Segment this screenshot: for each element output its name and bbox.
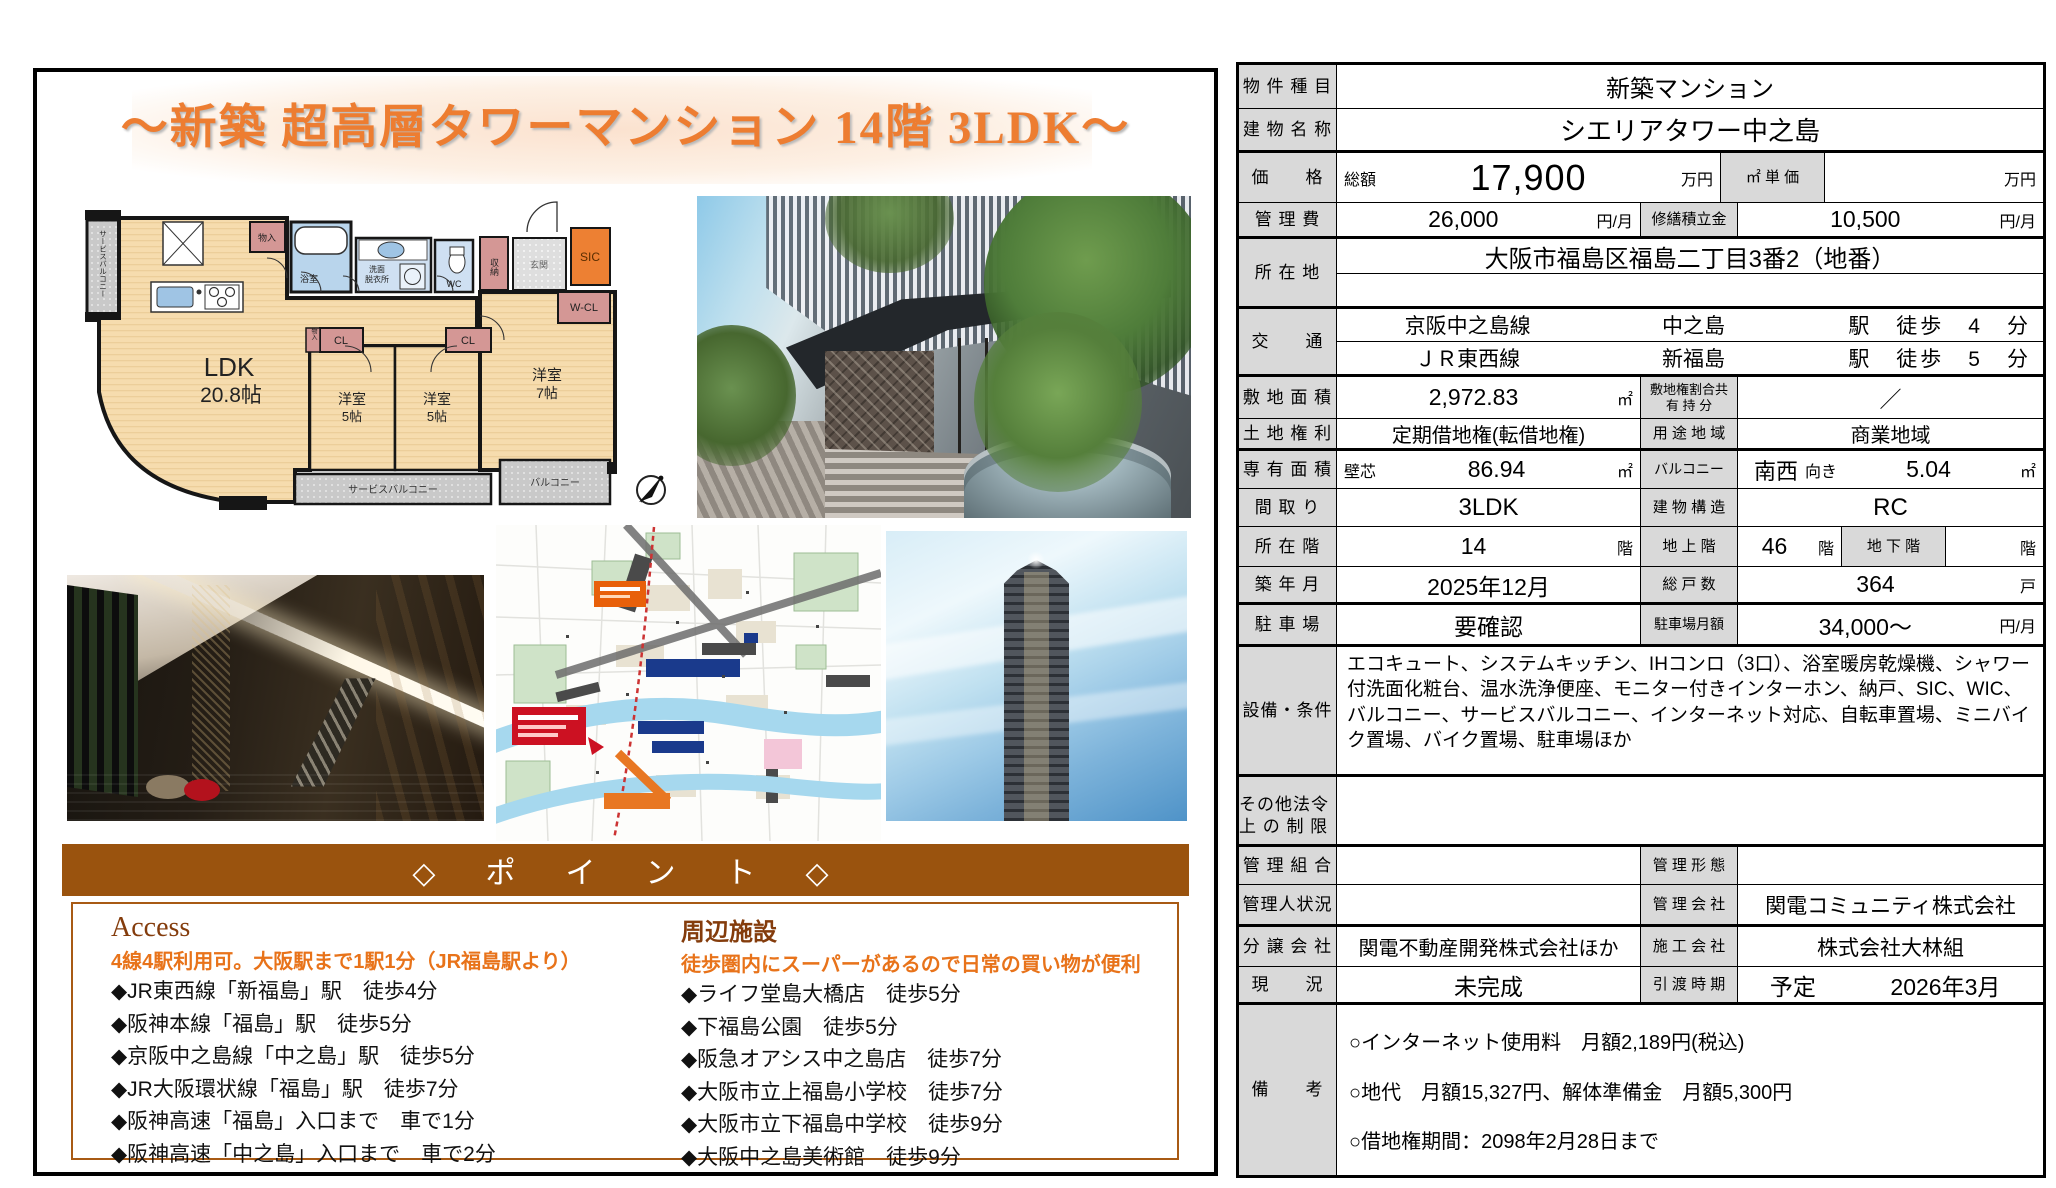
label-builder: 施 工 会 社: [1640, 927, 1738, 966]
transport-line-name: 京阪中之島線: [1337, 310, 1598, 340]
label-layout: 間 取 り: [1239, 489, 1337, 526]
delivery-value: 2026年3月: [1848, 968, 2043, 1002]
remarks-line: ○借地権期間：2098年2月28日まで: [1349, 1125, 1659, 1154]
value-location: 大阪市福島区福島二丁目3番2（地番）: [1337, 239, 2043, 274]
bedroom1-size: 5帖: [342, 409, 362, 424]
label-repair-fund: 修繕積立金: [1640, 203, 1738, 236]
value-structure: RC: [1738, 489, 2043, 526]
delivery-prefix: 予定: [1738, 968, 1848, 1002]
value-zoning: 商業地域: [1738, 419, 2043, 448]
row-price: 価 格 総額 17,900 万円 ㎡ 単 価 万円: [1239, 153, 2043, 203]
row-management-association: 管 理 組 合 管 理 形 態: [1239, 847, 2043, 885]
transport-line-1: 京阪中之島線 中之島 駅 徒歩 4 分: [1337, 309, 2043, 342]
row-manager-status: 管理人状況 管 理 会 社 関電コミュニティ株式会社: [1239, 885, 2043, 927]
washroom-label-2: 脱衣所: [365, 274, 389, 284]
value-seller: 関電不動産開発株式会社ほか: [1337, 927, 1640, 966]
label-location: 所 在 地: [1239, 239, 1337, 306]
property-spec-table: 物 件 種 目 新築マンション 建 物 名 称 シエリアタワー中之島 価 格 総…: [1236, 62, 2046, 1178]
value-remarks: ○インターネット使用料 月額2,189円(税込) ○地代 月額15,327円、解…: [1337, 1005, 2043, 1175]
label-property-type: 物 件 種 目: [1239, 65, 1337, 108]
label-unit-price: ㎡ 単 価: [1720, 153, 1825, 202]
price-amount: 17,900: [1383, 157, 1674, 199]
row-location: 所 在 地 大阪市福島区福島二丁目3番2（地番）: [1239, 239, 2043, 309]
balcony-amount: 5.04: [1844, 456, 2013, 483]
facility-item: ◆大阪中之島美術館 徒歩9分: [681, 1142, 1161, 1175]
access-column: Access 4線4駅利用可。大阪駅まで1駅1分（JR福島駅より） ◆JR東西線…: [111, 912, 651, 1171]
row-equipment: 設備・条件 エコキュート、システムキッチン、IHコンロ（3口）、浴室暖房乾燥機、…: [1239, 647, 2043, 777]
access-item: ◆阪神本線「福島」駅 徒歩5分: [111, 1009, 651, 1042]
sic-label: SIC: [580, 250, 600, 264]
label-management-fee: 管 理 費: [1239, 203, 1337, 236]
flyer-title: 〜新築 超高層タワーマンション 14階 3LDK〜: [37, 88, 1214, 157]
lobby-photo: [67, 575, 484, 821]
value-building-name: シエリアタワー中之島: [1337, 109, 2043, 150]
bedroom2-size: 5帖: [427, 409, 447, 424]
label-parking: 駐 車 場: [1239, 605, 1337, 644]
flyer-panel: 〜新築 超高層タワーマンション 14階 3LDK〜: [33, 68, 1218, 1176]
label-total-units: 総 戸 数: [1640, 567, 1738, 602]
row-site-area: 敷 地 面 積 2,972.83 ㎡ 敷地権割合共 有 持 分 ／: [1239, 377, 2043, 419]
transport-walk: 駅 徒歩 5 分: [1789, 343, 2043, 373]
label-zoning: 用 途 地 域: [1640, 419, 1738, 448]
transport-line-name: ＪＲ東西線: [1337, 343, 1598, 373]
management-fee-unit: 円/月: [1590, 208, 1640, 232]
label-land-share: 敷地権割合共 有 持 分: [1640, 377, 1738, 418]
transport-line-2: ＪＲ東西線 新福島 駅 徒歩 5 分: [1337, 342, 2043, 374]
row-floor: 所 在 階 14 階 地 上 階 46 階 地 下 階 階: [1239, 527, 2043, 567]
parking-monthly-unit: 円/月: [1993, 613, 2043, 637]
facilities-subheading: 徒歩圏内にスーパーがあるので日常の買い物が便利: [681, 948, 1161, 977]
facilities-column: 周辺施設 徒歩圏内にスーパーがあるので日常の買い物が便利 ◆ライフ堂島大橋店 徒…: [681, 912, 1161, 1174]
label-structure: 建 物 構 造: [1640, 489, 1738, 526]
price-prefix: 総額: [1337, 166, 1383, 190]
facilities-heading: 周辺施設: [681, 912, 1161, 947]
access-heading: Access: [111, 912, 651, 944]
row-management-fee: 管 理 費 26,000 円/月 修繕積立金 10,500 円/月: [1239, 203, 2043, 239]
wcl-label: W-CL: [570, 302, 598, 314]
row-exclusive-area: 専 有 面 積 壁芯 86.94 ㎡ バルコニー 南西 向き 5.04 ㎡: [1239, 451, 2043, 489]
facility-item: ◆大阪市立下福島中学校 徒歩9分: [681, 1109, 1161, 1142]
row-transport: 交 通 京阪中之島線 中之島 駅 徒歩 4 分 ＪＲ東西線 新福島 駅 徒歩 5…: [1239, 309, 2043, 377]
label-management-association: 管 理 組 合: [1239, 847, 1337, 884]
bedroom1-label: 洋室: [338, 391, 366, 407]
exclusive-area-unit: ㎡: [1610, 458, 1640, 482]
total-units-unit: 戸: [2013, 573, 2043, 597]
label-management-company: 管 理 会 社: [1640, 885, 1738, 924]
label-status: 現 況: [1239, 967, 1337, 1002]
balcony-muki: 向き: [1798, 458, 1844, 482]
row-remarks: 備 考 ○インターネット使用料 月額2,189円(税込) ○地代 月額15,32…: [1239, 1005, 2043, 1175]
entrance-label: 玄関: [530, 259, 548, 270]
label-site-area: 敷 地 面 積: [1239, 377, 1337, 418]
label-land-rights: 土 地 権 利: [1239, 419, 1337, 448]
unit-price-unit: 万円: [1997, 166, 2043, 190]
points-banner: ◇ ポ イ ン ト ◇: [62, 844, 1189, 896]
floorplan-image: LDK 20.8帖 洋室 5帖 洋室 5帖 洋室 7帖 CL CL W-CL S…: [59, 200, 624, 520]
closet2-label: CL: [461, 335, 475, 347]
bath-label: 浴室: [300, 273, 318, 284]
value-manager-status: [1337, 885, 1640, 924]
row-property-type: 物 件 種 目 新築マンション: [1239, 65, 2043, 109]
label-transport: 交 通: [1239, 309, 1337, 374]
floor-unit: 階: [1610, 535, 1640, 559]
label-exclusive-area: 専 有 面 積: [1239, 451, 1337, 488]
label-building-name: 建 物 名 称: [1239, 109, 1337, 150]
bedroom3-size: 7帖: [536, 385, 558, 401]
closet1-label: CL: [334, 335, 348, 347]
tower-photo: [886, 531, 1187, 821]
exclusive-area-prefix: 壁芯: [1337, 458, 1383, 482]
label-manager-status: 管理人状況: [1239, 885, 1337, 924]
access-subheading: 4線4駅利用可。大阪駅まで1駅1分（JR福島駅より）: [111, 945, 651, 974]
access-item: ◆京阪中之島線「中之島」駅 徒歩5分: [111, 1041, 651, 1074]
label-price: 価 格: [1239, 153, 1337, 202]
exclusive-area-amount: 86.94: [1383, 456, 1610, 483]
floors-below-unit: 階: [2013, 535, 2043, 559]
facility-item: ◆下福島公園 徒歩5分: [681, 1012, 1161, 1045]
value-management-association: [1337, 847, 1640, 884]
transport-station: 新福島: [1598, 343, 1789, 373]
label-built: 築 年 月: [1239, 567, 1337, 602]
row-parking: 駐 車 場 要確認 駐車場月額 34,000〜 円/月: [1239, 605, 2043, 647]
remarks-line: ○地代 月額15,327円、解体準備金 月額5,300円: [1349, 1076, 1792, 1105]
transport-station: 中之島: [1598, 310, 1789, 340]
label-floors-above: 地 上 階: [1640, 527, 1738, 566]
area-map: [496, 525, 881, 841]
label-management-form: 管 理 形 態: [1640, 847, 1738, 884]
repair-fund-amount: 10,500: [1738, 206, 1993, 233]
floor-value: 14: [1337, 533, 1610, 560]
parking-monthly-value: 34,000〜: [1738, 608, 1993, 642]
balcony-label: バルコニー: [530, 477, 580, 489]
storage-mid-label: 物入: [310, 327, 317, 340]
label-parking-monthly: 駐車場月額: [1640, 605, 1738, 644]
balcony-direction: 南西: [1754, 454, 1798, 486]
storage-label: 収納: [489, 257, 499, 277]
row-status: 現 況 未完成 引 渡 時 期 予定 2026年3月: [1239, 967, 2043, 1005]
access-item: ◆阪神高速「福島」入口まで 車で1分: [111, 1106, 651, 1139]
access-item: ◆JR大阪環状線「福島」駅 徒歩7分: [111, 1074, 651, 1107]
facility-item: ◆大阪市立上福島小学校 徒歩7分: [681, 1077, 1161, 1110]
value-status: 未完成: [1337, 967, 1640, 1002]
value-layout: 3LDK: [1337, 489, 1640, 526]
site-area-amount: 2,972.83: [1337, 384, 1610, 411]
label-balcony: バルコニー: [1640, 451, 1738, 488]
value-management-form: [1738, 847, 2043, 884]
facility-item: ◆ライフ堂島大橋店 徒歩5分: [681, 979, 1161, 1012]
site-area-unit: ㎡: [1610, 386, 1640, 410]
value-built: 2025年12月: [1337, 567, 1640, 602]
service-balcony-bottom-label: サービスバルコニー: [348, 484, 438, 496]
row-seller: 分 譲 会 社 関電不動産開発株式会社ほか 施 工 会 社 株式会社大林組: [1239, 927, 2043, 967]
management-fee-amount: 26,000: [1337, 206, 1590, 233]
bedroom-5a: [310, 346, 395, 470]
value-land-rights: 定期借地権(転借地権): [1337, 419, 1640, 448]
label-seller: 分 譲 会 社: [1239, 927, 1337, 966]
ldk-label: LDK: [204, 352, 255, 382]
remarks-line: ○インターネット使用料 月額2,189円(税込): [1349, 1026, 1744, 1055]
row-land-rights: 土 地 権 利 定期借地権(転借地権) 用 途 地 域 商業地域: [1239, 419, 2043, 451]
value-legal-restrictions: [1337, 777, 2043, 844]
label-floors-below: 地 下 階: [1841, 527, 1946, 566]
entrance-photo: [697, 196, 1191, 518]
access-item: ◆阪神高速「中之島」入口まで 車で2分: [111, 1139, 651, 1172]
transport-walk: 駅 徒歩 4 分: [1789, 310, 2043, 340]
floors-above-value: 46: [1738, 533, 1811, 560]
total-units-value: 364: [1738, 571, 2013, 598]
row-legal-restrictions: その他法令 上 の 制 限: [1239, 777, 2043, 847]
label-equipment: 設備・条件: [1239, 647, 1337, 774]
storage-top-label: 物入: [258, 232, 276, 243]
price-unit: 万円: [1674, 166, 1720, 190]
ldk-size: 20.8帖: [200, 384, 262, 407]
access-info-box: Access 4線4駅利用可。大阪駅まで1駅1分（JR福島駅より） ◆JR東西線…: [71, 902, 1179, 1160]
value-builder: 株式会社大林組: [1738, 927, 2043, 966]
access-item: ◆JR東西線「新福島」駅 徒歩4分: [111, 976, 651, 1009]
value-management-company: 関電コミュニティ株式会社: [1738, 885, 2043, 924]
bedroom-5b: [395, 346, 480, 470]
row-building-name: 建 物 名 称 シエリアタワー中之島: [1239, 109, 2043, 153]
value-land-share: ／: [1738, 377, 2043, 418]
facility-item: ◆阪急オアシス中之島店 徒歩7分: [681, 1044, 1161, 1077]
bedroom3-label: 洋室: [532, 367, 562, 384]
row-built: 築 年 月 2025年12月 総 戸 数 364 戸: [1239, 567, 2043, 605]
compass-icon: [631, 470, 671, 515]
washroom-label-1: 洗面: [369, 264, 385, 274]
label-floor: 所 在 階: [1239, 527, 1337, 566]
row-layout: 間 取 り 3LDK 建 物 構 造 RC: [1239, 489, 2043, 527]
service-balcony-side-label: サービスバルコニー: [98, 230, 107, 298]
value-parking: 要確認: [1337, 605, 1640, 644]
label-remarks: 備 考: [1239, 1005, 1337, 1175]
value-equipment: エコキュート、システムキッチン、IHコンロ（3口）、浴室暖房乾燥機、シャワー付洗…: [1337, 647, 2043, 774]
repair-fund-unit: 円/月: [1993, 208, 2043, 232]
label-delivery: 引 渡 時 期: [1640, 967, 1738, 1002]
wc-label: WC: [447, 279, 462, 289]
label-legal-restrictions: その他法令 上 の 制 限: [1239, 777, 1337, 844]
floors-above-unit: 階: [1811, 535, 1841, 559]
value-property-type: 新築マンション: [1337, 65, 2043, 108]
bedroom2-label: 洋室: [423, 391, 451, 407]
balcony-unit: ㎡: [2013, 458, 2043, 482]
